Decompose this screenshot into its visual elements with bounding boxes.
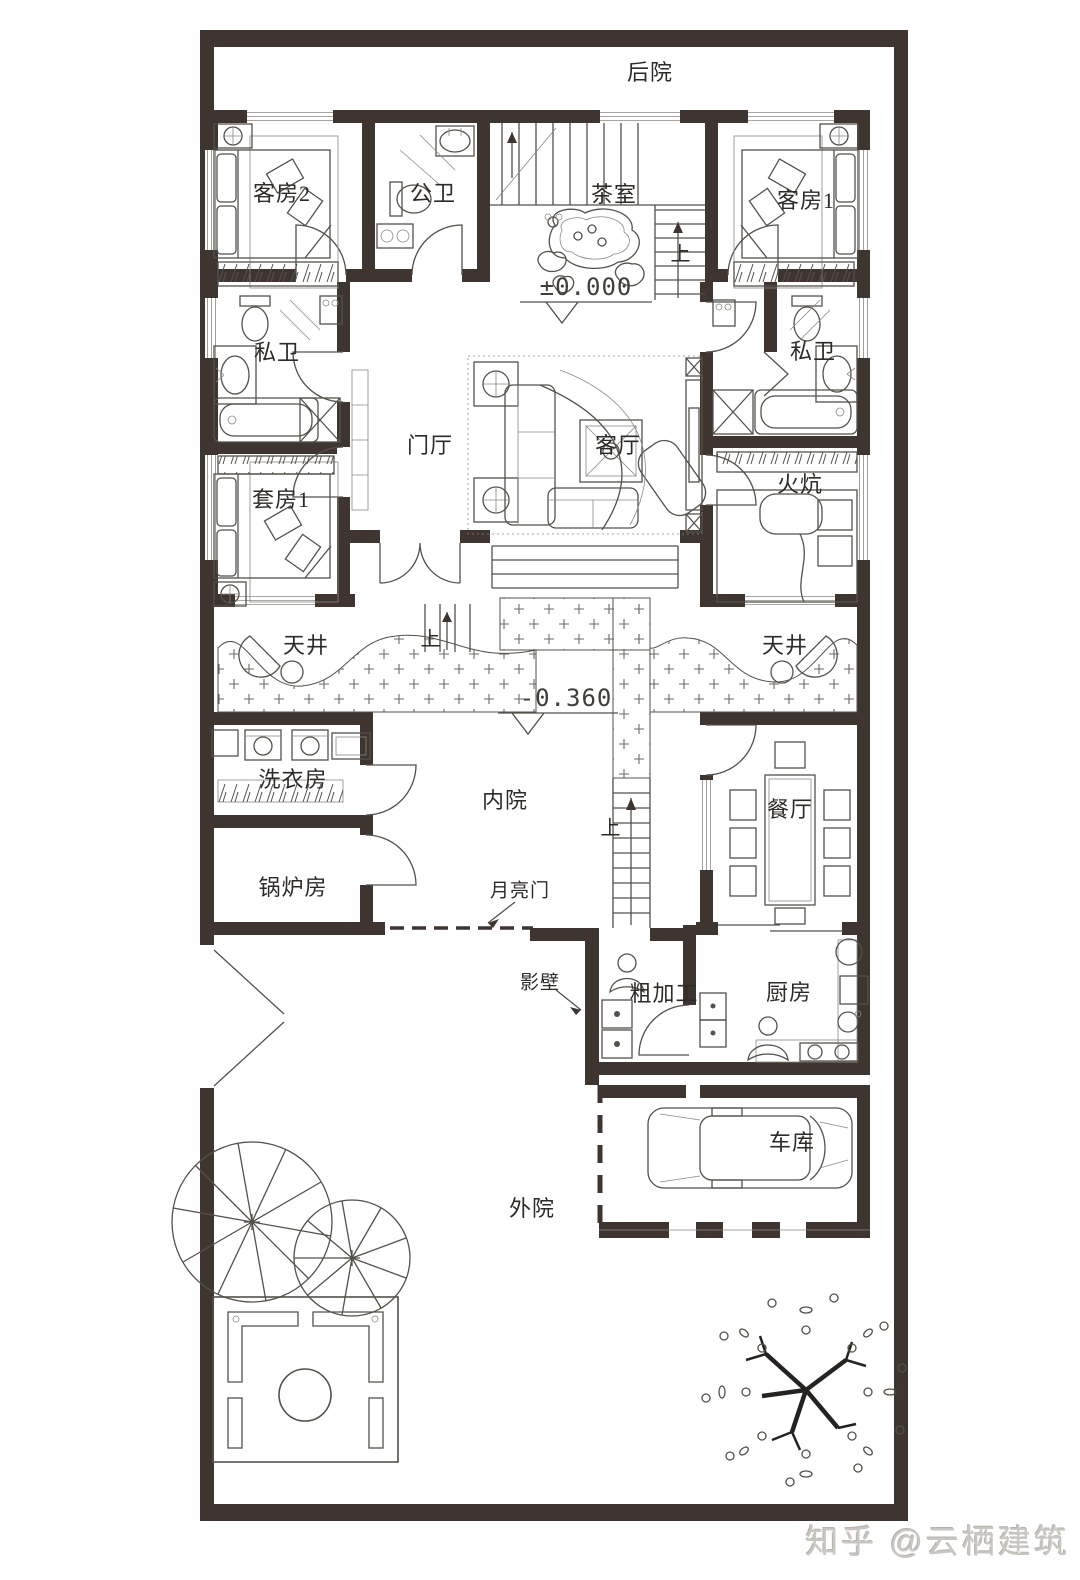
suite-1-furniture (214, 456, 338, 606)
watermark-text: 知乎 @云栖建筑 (805, 1515, 1070, 1563)
room-label-private-bathroom-left: 私卫 (254, 335, 300, 367)
living-room-furniture (352, 356, 712, 588)
room-label-living-room: 客厅 (595, 428, 641, 460)
room-label-kitchen: 厨房 (766, 975, 812, 1007)
room-label-rough-prep: 粗加工 (629, 976, 698, 1008)
label-screen-wall: 影壁 (520, 968, 560, 995)
dining-room-furniture (730, 742, 850, 924)
tree-right-scatter (702, 1294, 906, 1486)
room-label-inner-courtyard: 内院 (482, 783, 528, 815)
stair-up-label-courtyard: 上 (601, 812, 622, 841)
room-label-suite-1: 套房1 (252, 482, 310, 514)
private-bathroom-left-fixtures (214, 296, 342, 442)
room-label-private-bathroom-right: 私卫 (790, 334, 836, 366)
room-label-entry-hall: 门厅 (407, 428, 453, 460)
stair-up-label-main: 上 (671, 238, 692, 267)
tree-left-large (172, 1142, 332, 1302)
room-label-laundry: 洗衣房 (258, 762, 327, 794)
stair-up-label-steps: 上 (421, 623, 442, 652)
pavilion (213, 1297, 398, 1462)
room-label-light-well-left: 天井 (283, 628, 329, 660)
room-label-boiler-room: 锅炉房 (258, 870, 327, 902)
room-label-backyard: 后院 (627, 55, 673, 87)
room-label-guest-room-2: 客房2 (253, 176, 311, 208)
room-label-public-bathroom: 公卫 (410, 176, 456, 208)
room-label-guest-room-1: 客房1 (777, 183, 835, 215)
floor-plan-drawing (0, 0, 1080, 1580)
garage-car (600, 1085, 852, 1232)
elevation-mark-negative: -0.360 (520, 684, 613, 712)
room-label-tea-room: 茶室 (591, 177, 637, 209)
room-label-light-well-right: 天井 (762, 628, 808, 660)
room-label-dining-room: 餐厅 (767, 792, 813, 824)
elevation-mark-zero: ±0.000 (540, 273, 633, 301)
floor-plan-page: 后院 客房2 公卫 茶室 客房1 私卫 私卫 门厅 客厅 火炕 套房1 天井 天… (0, 0, 1080, 1580)
tree-left-small (294, 1200, 410, 1316)
room-label-outer-courtyard: 外院 (509, 1191, 555, 1223)
label-moon-gate: 月亮门 (490, 876, 550, 903)
room-label-kang-room: 火炕 (777, 467, 823, 499)
room-label-garage: 车库 (769, 1125, 815, 1157)
